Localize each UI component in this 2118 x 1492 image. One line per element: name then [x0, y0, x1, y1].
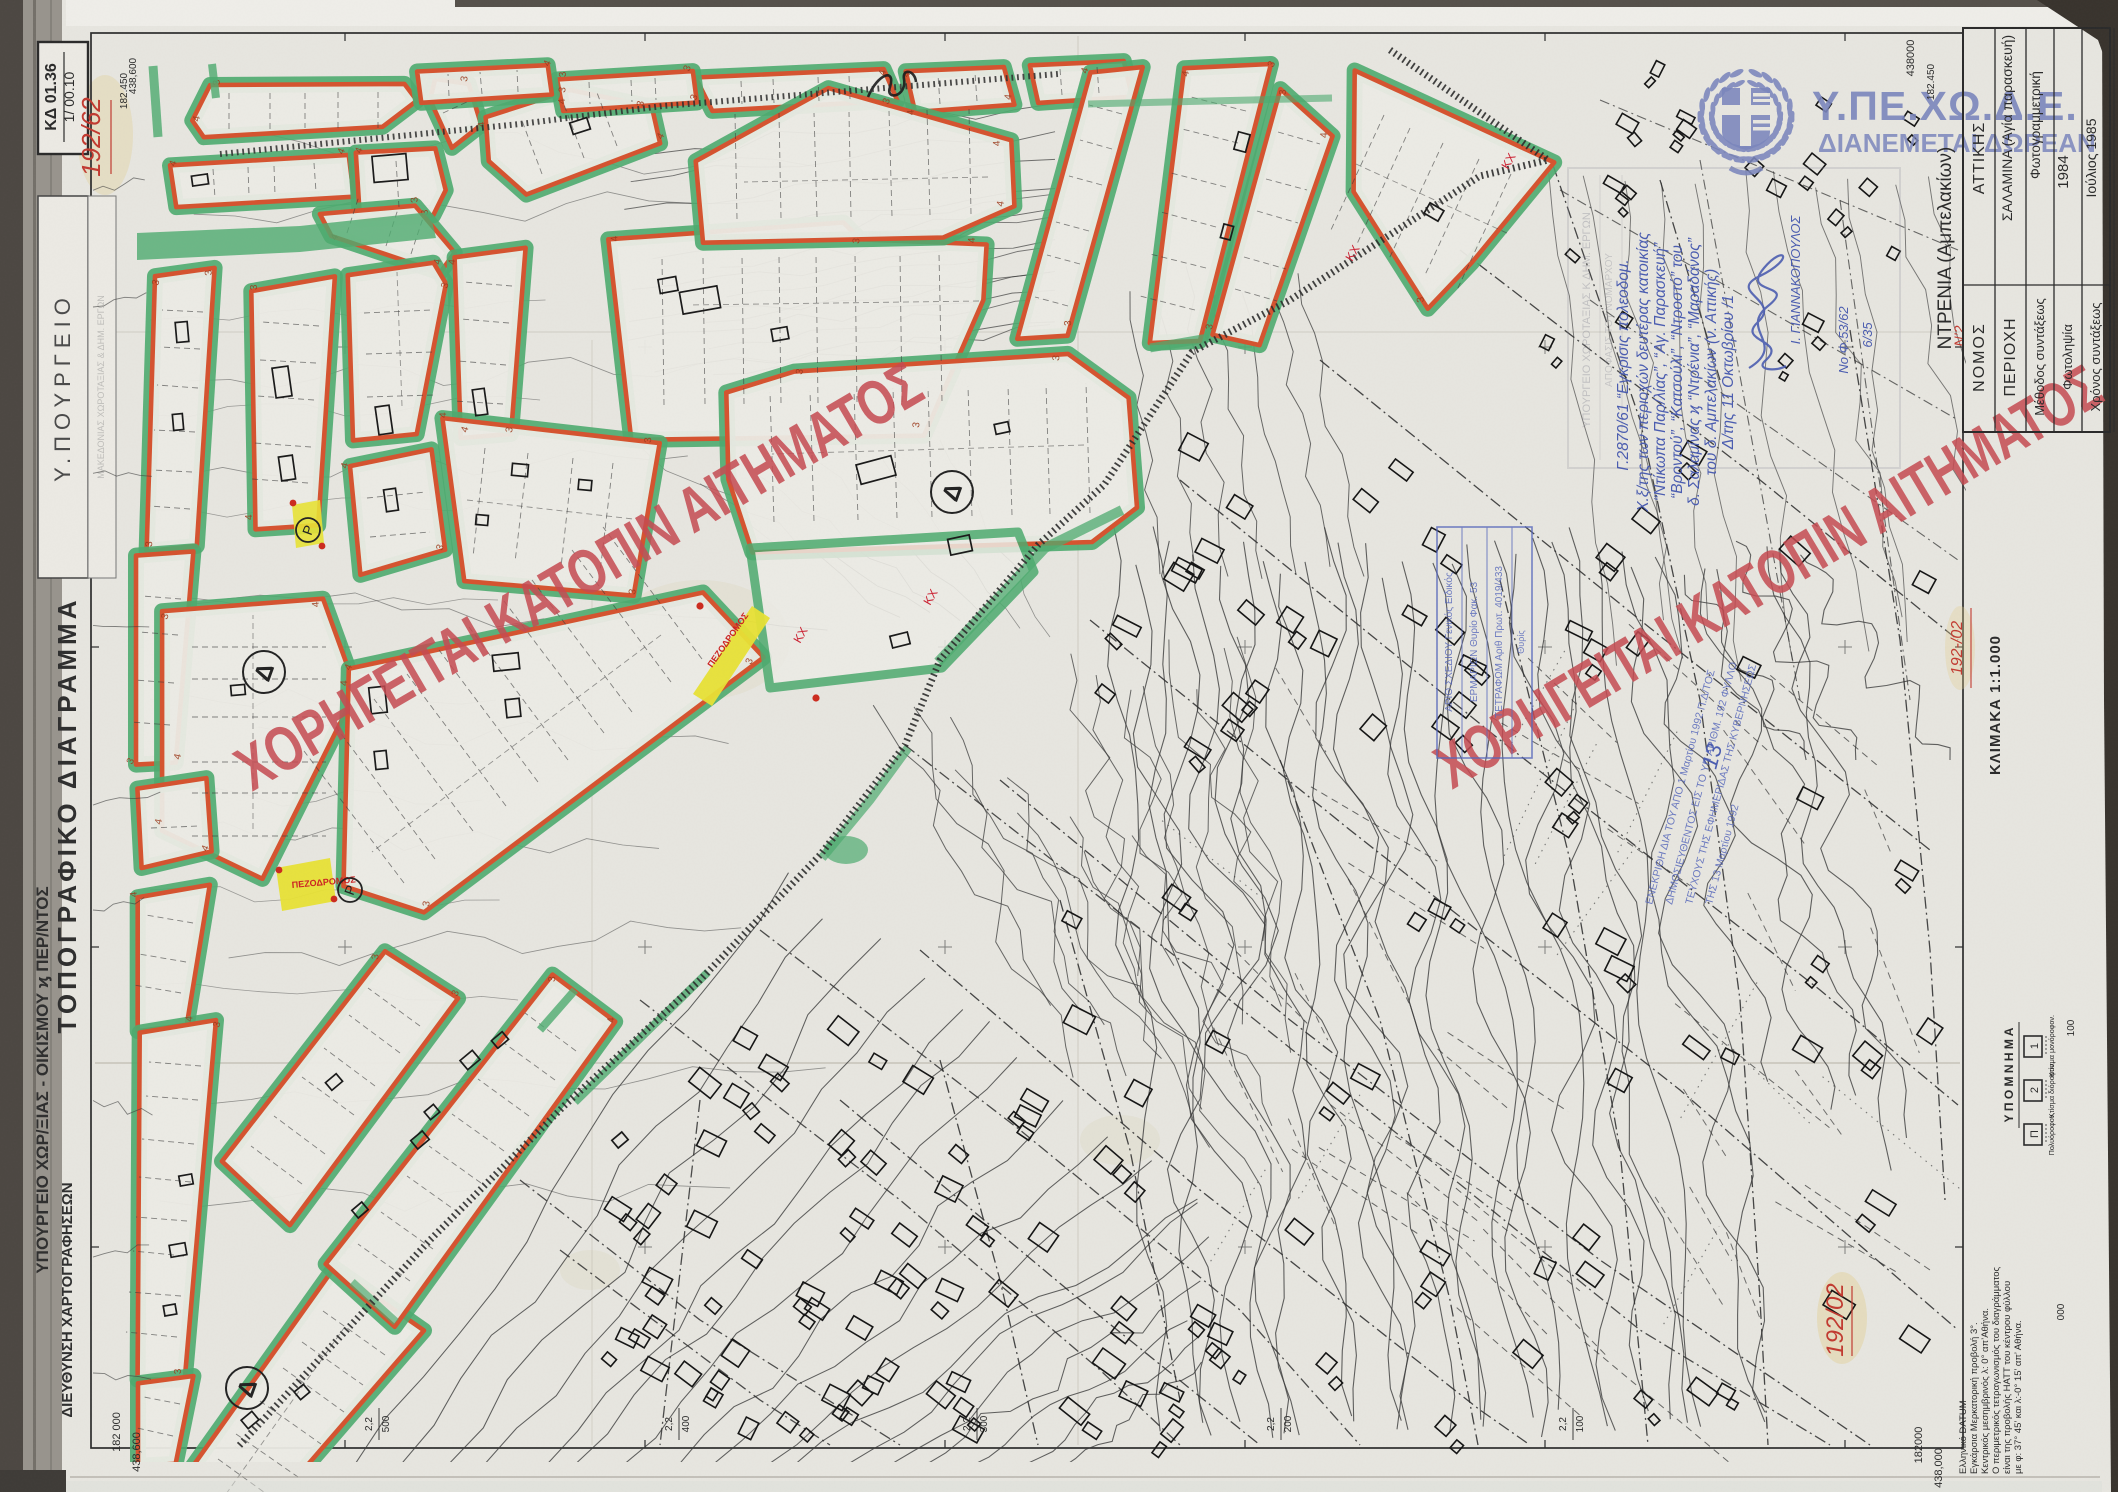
svg-text:ΚΔ 01.36: ΚΔ 01.36 — [43, 63, 60, 131]
svg-text:ΥΠΟΥΡΓΕΙΟ ΧΩΡ/ΞΙΑΣ - ΟΙΚΙΣΜΟΥ: ΥΠΟΥΡΓΕΙΟ ΧΩΡ/ΞΙΑΣ - ΟΙΚΙΣΜΟΥ ϗ ΠΕΡ/ΝΤΟΣ — [33, 886, 52, 1273]
